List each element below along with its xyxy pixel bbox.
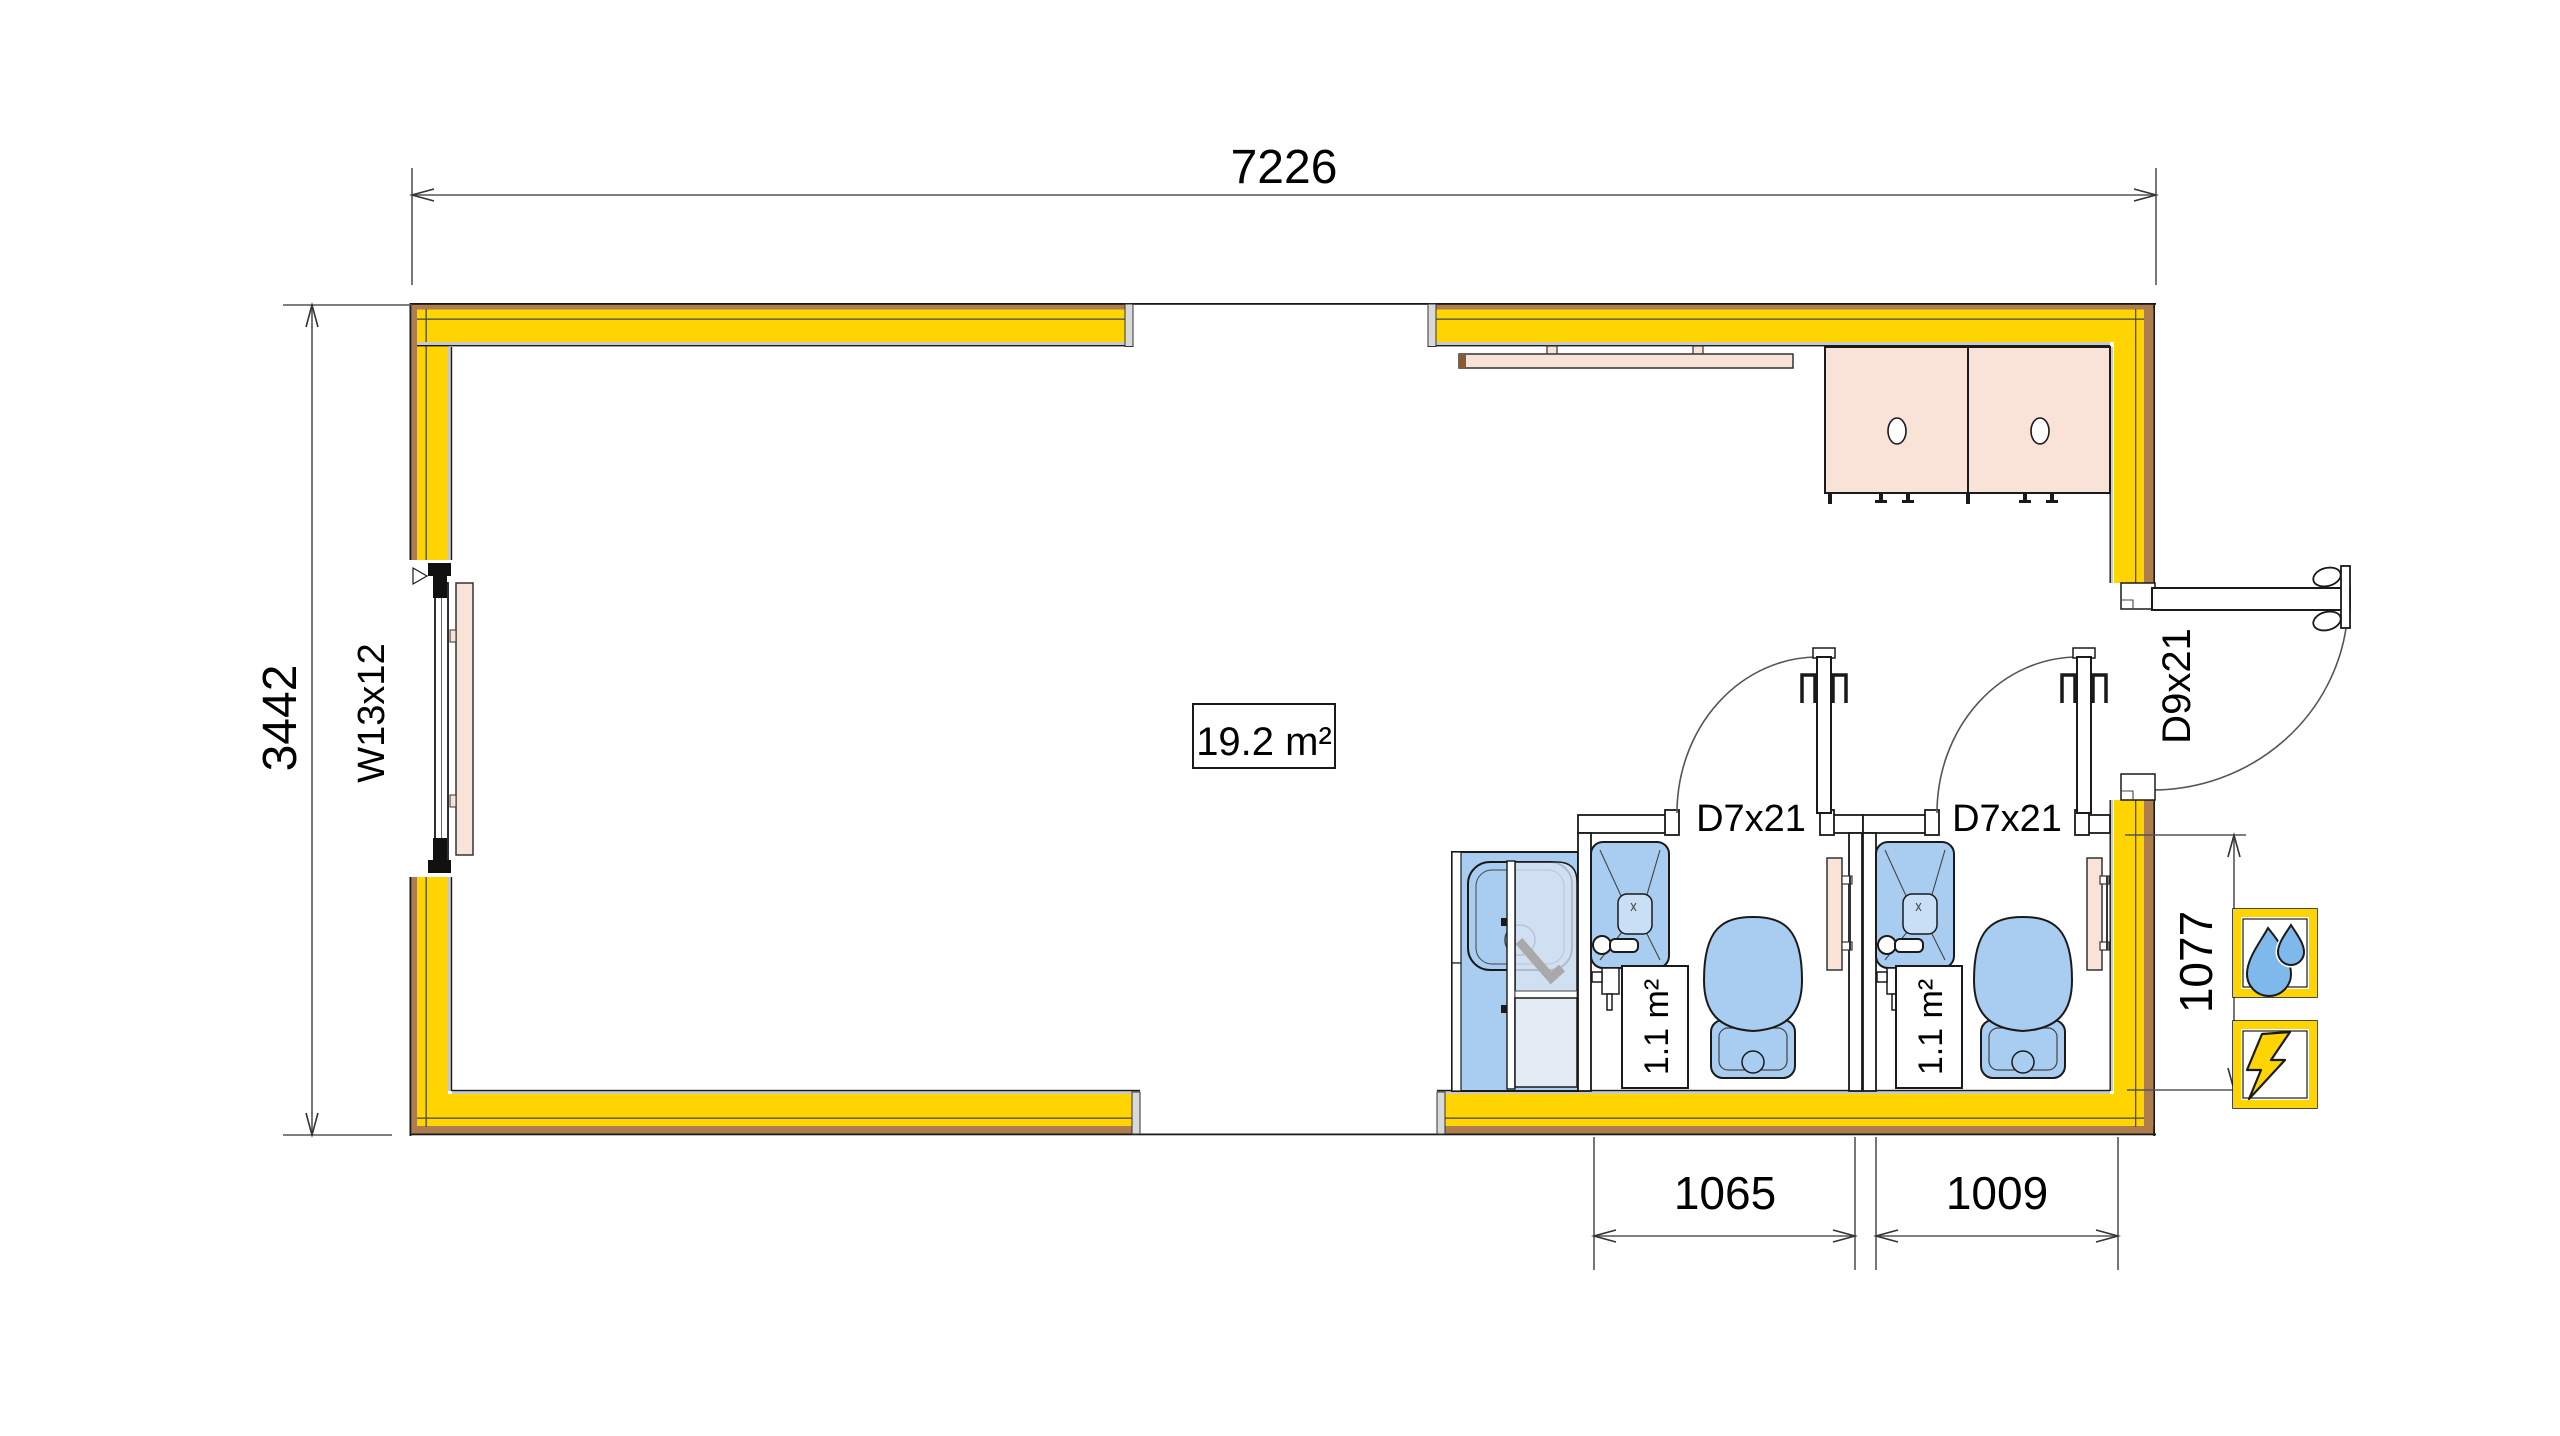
dim-wc1-label: 1065 [1674,1167,1776,1219]
main-room-area: 19.2 m² [1193,704,1335,768]
window-label: W13x12 [351,643,393,782]
dim-depth-label: 3442 [254,665,307,772]
kitchen-cabinets [1825,347,2110,504]
wc-room-1: 1.1 m² [1591,648,1852,1088]
cabinet-knob [1888,418,1906,444]
floorplan-drawing: 1.1 m² 1.1 m² [0,0,2560,1436]
shower-divider [1507,861,1515,1089]
wc2-door-label: D7x21 [1952,798,2062,840]
dim-recess-label: 1077 [2170,911,2222,1013]
entry-door-leaf [2152,588,2350,610]
wc1-door-leaf [1817,657,1831,813]
wc2-area-label: 1.1 m² [1912,979,1950,1075]
entry-door-label: D9x21 [2155,628,2199,744]
wc2-door-leaf [2077,657,2091,813]
dimension-7226: 7226 [412,141,2156,285]
cabinet-feet [1828,493,2058,504]
power-connection-badge [2233,1021,2317,1108]
wc1-door-label: D7x21 [1696,798,1806,840]
shower-enclosure [1452,852,1578,1091]
wc1-area-label: 1.1 m² [1638,979,1676,1075]
floorplan-canvas: 1.1 m² 1.1 m² [0,0,2560,1436]
kitchen-wall-shelf [1459,346,1793,368]
wc-room-2: 1.1 m² [1876,648,2109,1088]
cabinet-knob [2031,418,2049,444]
main-area-label: 19.2 m² [1196,720,1332,764]
wc2-door-open [1937,648,2106,813]
water-connection-badge [2233,909,2317,997]
wall-board [2087,858,2109,970]
shower-glass-lower [1515,998,1577,1087]
dimension-1009: 1009 [1876,1137,2118,1270]
wc1-door-open [1677,648,1846,813]
dim-wc2-label: 1009 [1946,1167,2048,1219]
window-sill-board [450,583,473,855]
window-w13x12 [409,560,473,877]
dim-width-label: 7226 [1231,141,1338,194]
dimension-1065: 1065 [1594,1137,1855,1270]
